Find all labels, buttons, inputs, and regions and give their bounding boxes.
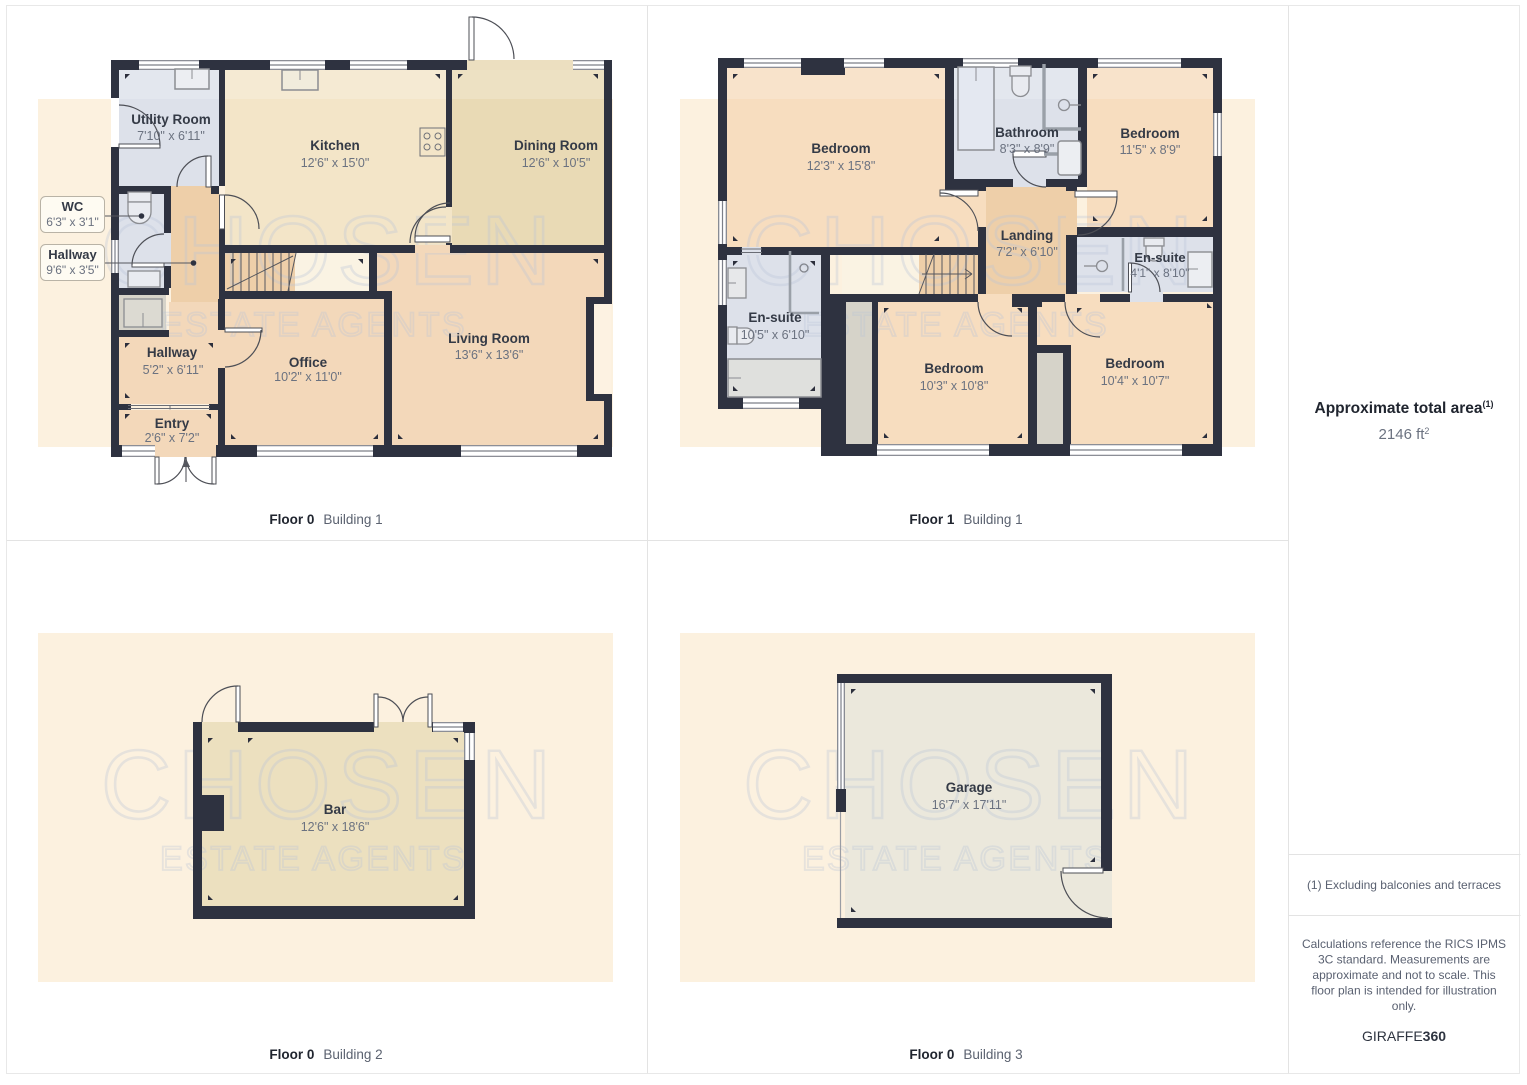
svg-text:11'5" x 8'9": 11'5" x 8'9" [1120, 143, 1181, 157]
svg-text:Dining Room: Dining Room [514, 138, 598, 153]
svg-text:10'2" x 11'0": 10'2" x 11'0" [274, 370, 342, 384]
svg-text:Bedroom: Bedroom [811, 141, 870, 156]
svg-text:10'3" x 10'8": 10'3" x 10'8" [920, 379, 989, 393]
svg-text:Entry: Entry [155, 416, 190, 431]
svg-text:8'3" x 8'9": 8'3" x 8'9" [1000, 142, 1055, 156]
svg-text:ESTATE AGENTS: ESTATE AGENTS [160, 306, 467, 344]
svg-text:GIRAFFE360: GIRAFFE360 [1362, 1028, 1446, 1044]
svg-text:Floor 0Building 3: Floor 0Building 3 [909, 1047, 1022, 1062]
svg-text:Bar: Bar [324, 802, 347, 817]
svg-text:2'6" x 7'2": 2'6" x 7'2" [145, 431, 200, 445]
svg-text:Floor 0Building 1: Floor 0Building 1 [269, 512, 382, 527]
svg-text:Floor 1Building 1: Floor 1Building 1 [909, 512, 1022, 527]
svg-text:WC: WC [62, 199, 84, 214]
svg-text:Living Room: Living Room [448, 331, 530, 346]
svg-text:4'1" x 8'10": 4'1" x 8'10" [1130, 266, 1189, 280]
svg-text:6'3" x 3'1": 6'3" x 3'1" [46, 215, 98, 229]
svg-text:En-suite: En-suite [1134, 250, 1185, 265]
svg-text:Garage: Garage [946, 780, 993, 795]
svg-text:2146 ft2: 2146 ft2 [1379, 426, 1430, 443]
svg-text:Utility Room: Utility Room [131, 112, 211, 127]
svg-text:9'6" x 3'5": 9'6" x 3'5" [46, 263, 98, 277]
svg-text:16'7" x 17'11": 16'7" x 17'11" [932, 798, 1007, 812]
svg-text:7'2" x 6'10": 7'2" x 6'10" [996, 245, 1058, 259]
svg-text:En-suite: En-suite [748, 310, 802, 325]
svg-text:Kitchen: Kitchen [310, 138, 360, 153]
svg-text:5'2" x 6'11": 5'2" x 6'11" [143, 363, 204, 377]
svg-text:Hallway: Hallway [48, 247, 97, 262]
svg-text:12'6" x 10'5": 12'6" x 10'5" [522, 156, 591, 170]
svg-text:Bedroom: Bedroom [924, 361, 983, 376]
svg-text:Floor 0Building 2: Floor 0Building 2 [269, 1047, 382, 1062]
svg-text:10'5" x 6'10": 10'5" x 6'10" [741, 328, 810, 342]
svg-text:ESTATE AGENTS: ESTATE AGENTS [160, 840, 467, 878]
svg-text:10'4" x 10'7": 10'4" x 10'7" [1101, 374, 1170, 388]
svg-text:12'6" x 15'0": 12'6" x 15'0" [301, 156, 370, 170]
svg-text:Bedroom: Bedroom [1120, 126, 1179, 141]
svg-text:Landing: Landing [1001, 228, 1054, 243]
svg-text:12'3" x 15'8": 12'3" x 15'8" [807, 159, 876, 173]
svg-text:Approximate total area(1): Approximate total area(1) [1315, 399, 1494, 417]
svg-text:13'6" x 13'6": 13'6" x 13'6" [455, 348, 524, 362]
svg-text:Office: Office [289, 355, 328, 370]
svg-text:Bedroom: Bedroom [1105, 356, 1164, 371]
svg-text:Hallway: Hallway [147, 345, 198, 360]
svg-text:ESTATE AGENTS: ESTATE AGENTS [802, 306, 1109, 344]
svg-text:7'10" x 6'11": 7'10" x 6'11" [137, 129, 205, 143]
svg-text:(1) Excluding balconies and te: (1) Excluding balconies and terraces [1307, 878, 1501, 892]
svg-text:Bathroom: Bathroom [995, 125, 1059, 140]
svg-text:12'6" x 18'6": 12'6" x 18'6" [301, 820, 370, 834]
